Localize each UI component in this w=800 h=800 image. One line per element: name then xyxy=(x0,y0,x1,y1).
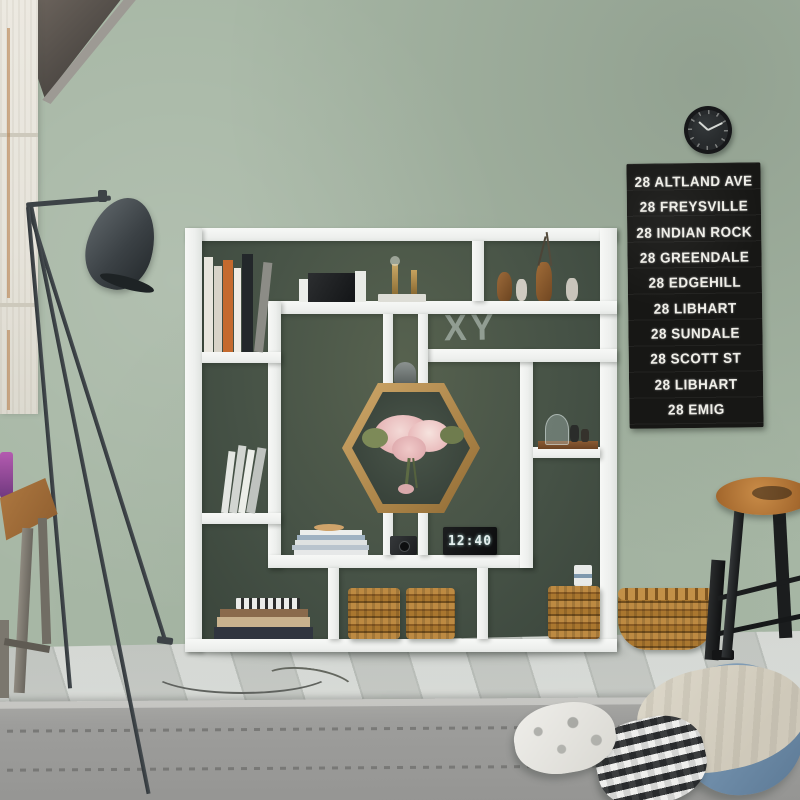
small-bottle xyxy=(570,425,579,442)
shelf-bar-right-mid xyxy=(418,349,617,362)
shelf-divider-top xyxy=(472,241,484,301)
stacked-book xyxy=(294,550,368,555)
shelf-bottom-divider xyxy=(477,568,488,639)
chalkboard-line: 28 EMIG xyxy=(633,401,759,418)
digital-clock-display: 12:40 xyxy=(448,534,492,549)
vase xyxy=(497,272,512,301)
chalkboard-line: 28 SCOTT ST xyxy=(633,350,759,367)
book-row-top xyxy=(204,250,268,352)
door-paint-streak xyxy=(7,28,10,298)
book-spine xyxy=(234,268,241,352)
door-groove xyxy=(0,303,38,307)
book-spine xyxy=(242,254,253,352)
shelf-bar-inner-left xyxy=(268,301,281,568)
small-bottle xyxy=(581,429,589,442)
wicker-basket xyxy=(406,588,455,639)
candlestick xyxy=(411,270,417,294)
vase xyxy=(566,278,578,301)
shelf-bottom-divider xyxy=(328,568,339,639)
book-stack-small xyxy=(378,294,426,302)
shelf-bar-left xyxy=(185,228,202,652)
shelf-bar-top xyxy=(185,228,617,241)
leaf-cluster xyxy=(362,428,388,448)
shelf-bar-right xyxy=(600,228,617,646)
chalkboard-line: 28 EDGEHILL xyxy=(632,274,758,291)
stacked-book xyxy=(292,545,369,550)
shelf-left-shelf xyxy=(202,352,281,363)
wicker-basket xyxy=(348,588,400,639)
fallen-petals xyxy=(398,484,414,494)
basket-rim xyxy=(618,588,714,600)
cup-stack xyxy=(574,565,592,586)
stacked-book xyxy=(236,598,300,609)
glass-cloche xyxy=(545,414,569,445)
leaf-cluster xyxy=(440,426,464,444)
stacked-book xyxy=(297,535,365,540)
chalkboard-line: 28 GREENDALE xyxy=(631,249,757,266)
vase xyxy=(536,262,552,301)
candle-glass xyxy=(390,256,400,266)
door-groove xyxy=(0,133,38,137)
book-spine xyxy=(223,260,233,352)
wall-letters: XY xyxy=(444,308,498,348)
camera xyxy=(390,536,417,555)
decor-plate xyxy=(314,524,344,531)
stacked-book xyxy=(217,617,310,627)
digital-clock: 12:40 xyxy=(443,527,497,555)
book-spine xyxy=(214,266,222,352)
stacked-book xyxy=(220,609,308,617)
chalkboard-sign: 28 ALTLAND AVE 28 FREYSVILLE 28 INDIAN R… xyxy=(626,162,763,429)
dome-ornament xyxy=(394,362,416,383)
vase xyxy=(516,279,527,301)
stacked-book xyxy=(295,540,367,545)
bookend xyxy=(299,279,308,302)
magazine-group xyxy=(221,442,273,513)
chalkboard-line: 28 ALTLAND AVE xyxy=(631,173,757,190)
chalkboard-line: 28 FREYSVILLE xyxy=(631,198,757,215)
shelf-bar-inner-right xyxy=(520,349,533,568)
stool-seat-marking xyxy=(752,486,792,500)
door-paint-streak xyxy=(7,330,10,410)
shelf-bar-inner-top xyxy=(268,301,617,314)
candlestick xyxy=(392,264,398,294)
chalkboard-line: 28 SUNDALE xyxy=(632,325,758,342)
bookend xyxy=(355,271,366,302)
shelf-bar-inner-bottom xyxy=(268,555,533,568)
book-spine xyxy=(204,257,213,352)
camera-lens xyxy=(399,541,410,552)
chair-leg xyxy=(0,620,9,698)
wall-clock xyxy=(684,106,732,154)
chalkboard-line: 28 LIBHART xyxy=(632,299,758,316)
stacked-book xyxy=(214,627,313,639)
book-stack-bottom xyxy=(214,597,314,639)
wicker-basket xyxy=(548,586,600,639)
chalkboard-line: 28 INDIAN ROCK xyxy=(631,224,757,241)
shelf-left-shelf xyxy=(202,513,281,524)
lamp-joint xyxy=(98,190,107,202)
purple-cup xyxy=(0,452,13,498)
black-box xyxy=(308,273,355,302)
chalkboard-line: 28 LIBHART xyxy=(633,375,759,392)
magazine-stack xyxy=(292,527,370,555)
cup-stripe xyxy=(574,574,592,578)
wicker-basket-large xyxy=(618,588,714,650)
room-scene: XY xyxy=(0,0,800,800)
chair-leg xyxy=(38,518,51,644)
